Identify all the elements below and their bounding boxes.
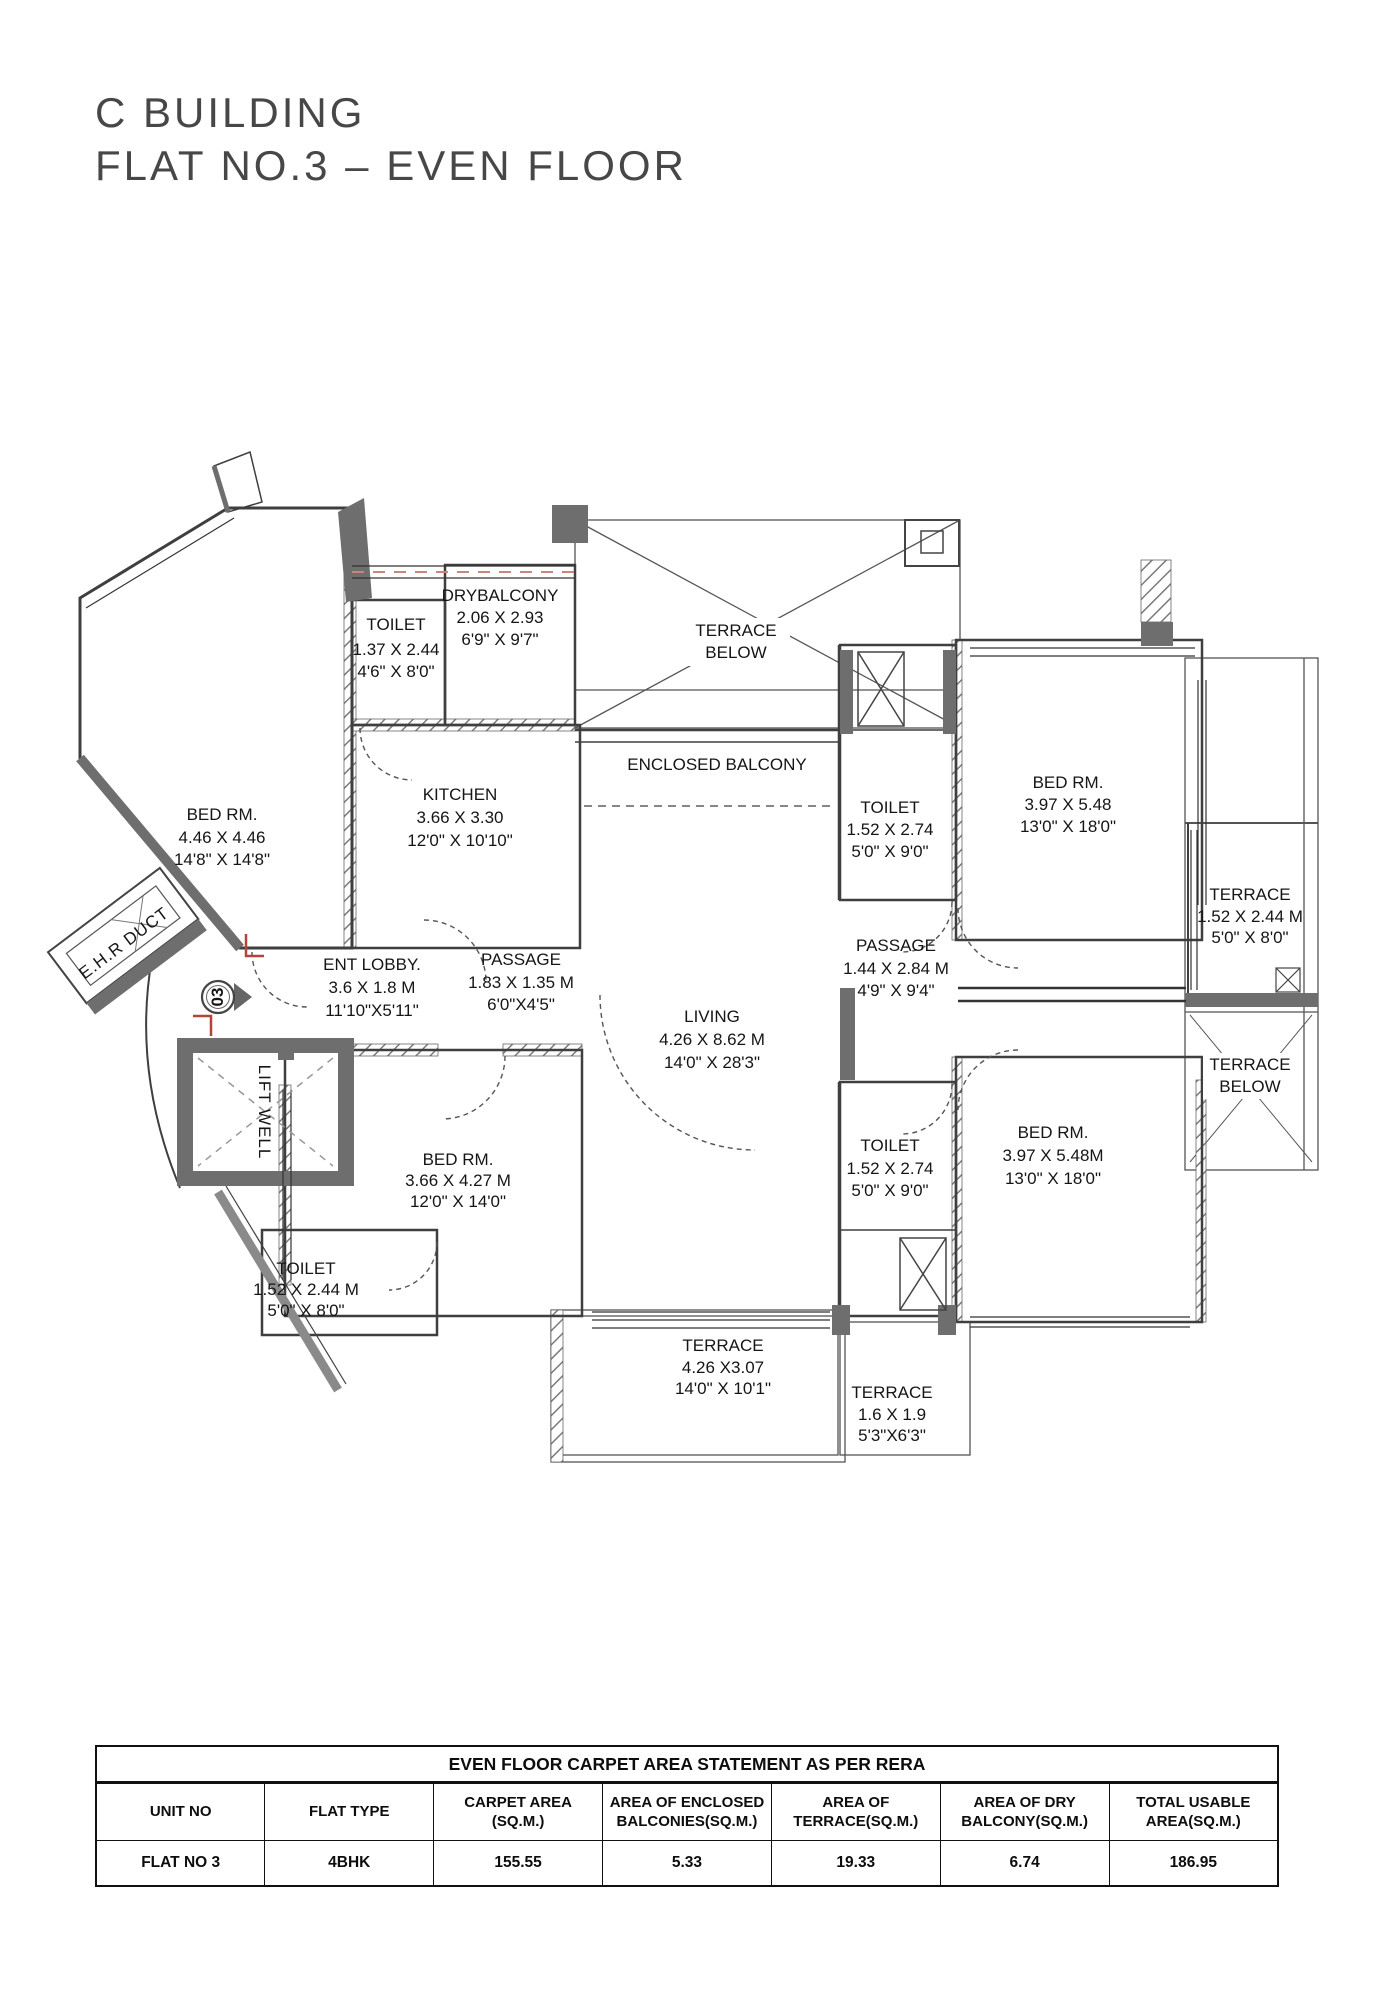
cell-enclosed-balconies: 5.33 [603,1841,772,1887]
room-dim-m: 1.37 X 2.44 [353,640,440,659]
room-label-bed-room-bottom-left: BED RM. 3.66 X 4.27 M 12'0" X 14'0" [405,1150,511,1211]
col-header-dry-balcony: AREA OF DRY BALCONY(SQ.M.) [940,1783,1109,1841]
room-label-passage-left: PASSAGE 1.83 X 1.35 M 6'0"X4'5" [468,950,574,1014]
room-dim-ft: 13'0" X 18'0" [1005,1169,1101,1188]
room-dim-ft: 12'0" X 14'0" [410,1192,506,1211]
header-line: FLAT TYPE [268,1802,430,1822]
room-dim-m: 3.97 X 5.48 [1025,795,1112,814]
duct-shaft-box [900,1238,946,1310]
room-label-toilet-upper-mid: TOILET 1.52 X 2.74 5'0" X 9'0" [847,798,934,861]
wall-chunk [840,650,853,734]
room-name: BED RM. [1018,1123,1089,1142]
cell-dry-balcony: 6.74 [940,1841,1109,1887]
room-name: BED RM. [423,1150,494,1169]
room-dim-ft: 5'0" X 9'0" [851,1181,928,1200]
entry-door-red-mark [193,1016,211,1036]
room-dim-ft: 4'9" X 9'4" [857,981,934,1000]
window-line [86,518,234,608]
room-dim-m: 1.52 X 2.74 [847,1159,934,1178]
room-dim-m: 4.46 X 4.46 [179,828,266,847]
room-label-entrance-lobby: ENT LOBBY. 3.6 X 1.8 M 11'10"X5'11" [323,955,421,1020]
room-label-bed-room-top-right: BED RM. 3.97 X 5.48 13'0" X 18'0" [1020,773,1116,836]
cell-terrace-area: 19.33 [771,1841,940,1887]
room-dim-ft: 6'9" X 9'7" [461,630,538,649]
header-line: AREA(SQ.M.) [1113,1812,1274,1832]
room-name: BED RM. [1033,773,1104,792]
room-name: TERRACE [695,621,776,640]
room-label-passage-right: PASSAGE 1.44 X 2.84 M 4'9" X 9'4" [843,936,949,1000]
room-name: TERRACE [682,1336,763,1355]
door-arc [902,1084,952,1134]
header-line: BALCONY(SQ.M.) [944,1812,1106,1832]
cell-unit-no: FLAT NO 3 [96,1841,265,1887]
room-dim-ft: 14'0" X 10'1" [675,1379,771,1398]
wall-chunk [1185,993,1318,1007]
room-dim-m: 1.6 X 1.9 [858,1405,926,1424]
room-dim-m: 3.66 X 4.27 M [405,1171,511,1190]
room-name: BED RM. [187,805,258,824]
room-dim-ft: 14'8" X 14'8" [174,850,270,869]
room-dim-m: 1.52 X 2.44 M [253,1280,359,1299]
room-name: TERRACE [1209,885,1290,904]
room-label-toilet-bottom-mid: TOILET 1.52 X 2.74 5'0" X 9'0" [847,1136,934,1200]
entry-door-red-mark [246,934,264,956]
room-label-toilet-upper-left: TOILET 1.37 X 2.44 4'6" X 8'0" [353,615,440,681]
room-dim-m: 3.66 X 3.30 [417,808,504,827]
room-dim-m: 4.26 X 8.62 M [659,1030,765,1049]
corner-post [905,520,959,566]
room-label-enclosed-balcony: ENCLOSED BALCONY [627,755,807,774]
ehr-duct: E.H.R DUCT [48,868,207,1015]
door-arc [360,728,412,780]
door-arc [252,952,307,1007]
room-dim-ft: 12'0" X 10'10" [407,831,513,850]
duct-shaft-box [858,652,904,726]
room-dim-m: 1.52 X 2.74 [847,820,934,839]
header-line: TERRACE(SQ.M.) [775,1812,937,1832]
door-arc [958,908,1018,968]
wall-chunk [943,650,956,734]
door-arc [389,1242,437,1290]
room-dim-m: 3.97 X 5.48M [1002,1146,1103,1165]
header-line: AREA OF ENCLOSED [606,1793,768,1813]
room-label-kitchen: KITCHEN 3.66 X 3.30 12'0" X 10'10" [407,785,513,850]
curved-exterior-wall [146,958,180,1188]
wall-chunk [338,498,372,602]
col-header-terrace-area: AREA OF TERRACE(SQ.M.) [771,1783,940,1841]
unit-marker-number: 03 [208,988,227,1007]
room-dim-ft: 14'0" X 28'3" [664,1053,760,1072]
room-name: ENCLOSED BALCONY [627,755,807,774]
wall-chunk [840,988,855,1080]
room-dim-m: 2.06 X 2.93 [457,608,544,627]
header-line: AREA OF [775,1793,937,1813]
room-label-bed-room-left: BED RM. 4.46 X 4.46 14'8" X 14'8" [174,805,270,869]
room-dim-m: 4.26 X3.07 [682,1358,764,1377]
wall-chunk [832,1305,850,1335]
room-name: TOILET [276,1259,335,1278]
room-name: TERRACE [851,1383,932,1402]
room-label-terrace-bottom-small: TERRACE 1.6 X 1.9 5'3"X6'3" [851,1383,932,1445]
wall-chunk [552,505,588,543]
room-name: BELOW [705,643,766,662]
room-name: PASSAGE [856,936,936,955]
room-dim-ft: 4'6" X 8'0" [357,662,434,681]
header-line: AREA OF DRY [944,1793,1106,1813]
bed-room-left-walls [80,508,352,948]
room-name: ENT LOBBY. [323,955,421,974]
room-name: DRYBALCONY [442,586,559,605]
table-data-row: FLAT NO 3 4BHK 155.55 5.33 19.33 6.74 18… [96,1841,1278,1887]
room-label-lift-well: LIFT WELL [255,1065,274,1160]
room-dim-ft: 11'10"X5'11" [325,1001,419,1020]
bed-room-bottom-right-walls [956,1057,1202,1322]
door-arc [958,1050,1018,1110]
room-dim-ft: 6'0"X4'5" [487,995,555,1014]
room-name: KITCHEN [423,785,498,804]
room-dim-ft: 13'0" X 18'0" [1020,817,1116,836]
wall-hatched [551,1310,563,1462]
room-name: TOILET [860,1136,919,1155]
room-name: LIVING [684,1007,740,1026]
room-name: TOILET [860,798,919,817]
wall-chunk [214,466,228,512]
cell-flat-type: 4BHK [265,1841,434,1887]
room-label-living: LIVING 4.26 X 8.62 M 14'0" X 28'3" [659,1007,765,1072]
room-dim-ft: 5'0" X 8'0" [267,1301,344,1320]
room-dim-m: 1.83 X 1.35 M [468,973,574,992]
room-dim-ft: 5'0" X 8'0" [1211,928,1288,947]
room-label-bed-room-bottom-right: BED RM. 3.97 X 5.48M 13'0" X 18'0" [1002,1123,1103,1188]
header-line: (SQ.M.) [437,1812,599,1832]
room-label-dry-balcony: DRYBALCONY 2.06 X 2.93 6'9" X 9'7" [442,586,559,649]
door-arc [442,1056,505,1119]
room-dim-m: 1.44 X 2.84 M [843,959,949,978]
table-title-row: EVEN FLOOR CARPET AREA STATEMENT AS PER … [96,1746,1278,1783]
col-header-enclosed-balconies: AREA OF ENCLOSED BALCONIES(SQ.M.) [603,1783,772,1841]
room-name: TOILET [366,615,425,634]
room-label-terrace-right: TERRACE 1.52 X 2.44 M 5'0" X 8'0" [1197,885,1303,947]
floor-plan-page: C BUILDING FLAT NO.3 – EVEN FLOOR [0,0,1392,1992]
room-dim-ft: 5'0" X 9'0" [851,842,928,861]
cell-total-usable: 186.95 [1109,1841,1278,1887]
col-header-flat-type: FLAT TYPE [265,1783,434,1841]
room-label-terrace-bottom: TERRACE 4.26 X3.07 14'0" X 10'1" [675,1336,771,1398]
header-line: BALCONIES(SQ.M.) [606,1812,768,1832]
table-title: EVEN FLOOR CARPET AREA STATEMENT AS PER … [96,1746,1278,1783]
carpet-area-table: EVEN FLOOR CARPET AREA STATEMENT AS PER … [95,1745,1279,1887]
col-header-total-usable: TOTAL USABLE AREA(SQ.M.) [1109,1783,1278,1841]
room-name: PASSAGE [481,950,561,969]
cell-carpet-area: 155.55 [434,1841,603,1887]
table-header-row: UNIT NO FLAT TYPE CARPET AREA (SQ.M.) AR… [96,1783,1278,1841]
floor-plan-drawing: E.H.R DUCT 03 TOILET 1.37 X 2.44 4'6" X … [0,0,1392,1560]
col-header-carpet-area: CARPET AREA (SQ.M.) [434,1783,603,1841]
unit-marker-pointer-icon [234,983,252,1011]
room-dim-m: 1.52 X 2.44 M [1197,907,1303,926]
duct-shaft-box-small [1276,968,1300,992]
room-name: BELOW [1219,1077,1280,1096]
room-name: TERRACE [1209,1055,1290,1074]
unit-number-marker: 03 [202,981,252,1013]
room-dim-ft: 5'3"X6'3" [858,1426,926,1445]
wall-chunk [1141,622,1173,646]
col-header-unit-no: UNIT NO [96,1783,265,1841]
wall-hatched [1141,560,1171,622]
header-line: TOTAL USABLE [1113,1793,1274,1813]
header-line: UNIT NO [100,1802,261,1822]
room-name: LIFT WELL [255,1065,274,1160]
room-dim-m: 3.6 X 1.8 M [329,978,416,997]
header-line: CARPET AREA [437,1793,599,1813]
